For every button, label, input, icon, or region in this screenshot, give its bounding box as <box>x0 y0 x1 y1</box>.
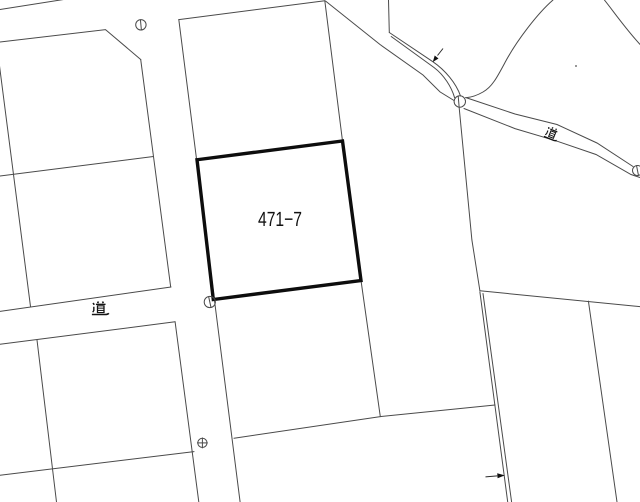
svg-text:471−7: 471−7 <box>258 208 302 231</box>
